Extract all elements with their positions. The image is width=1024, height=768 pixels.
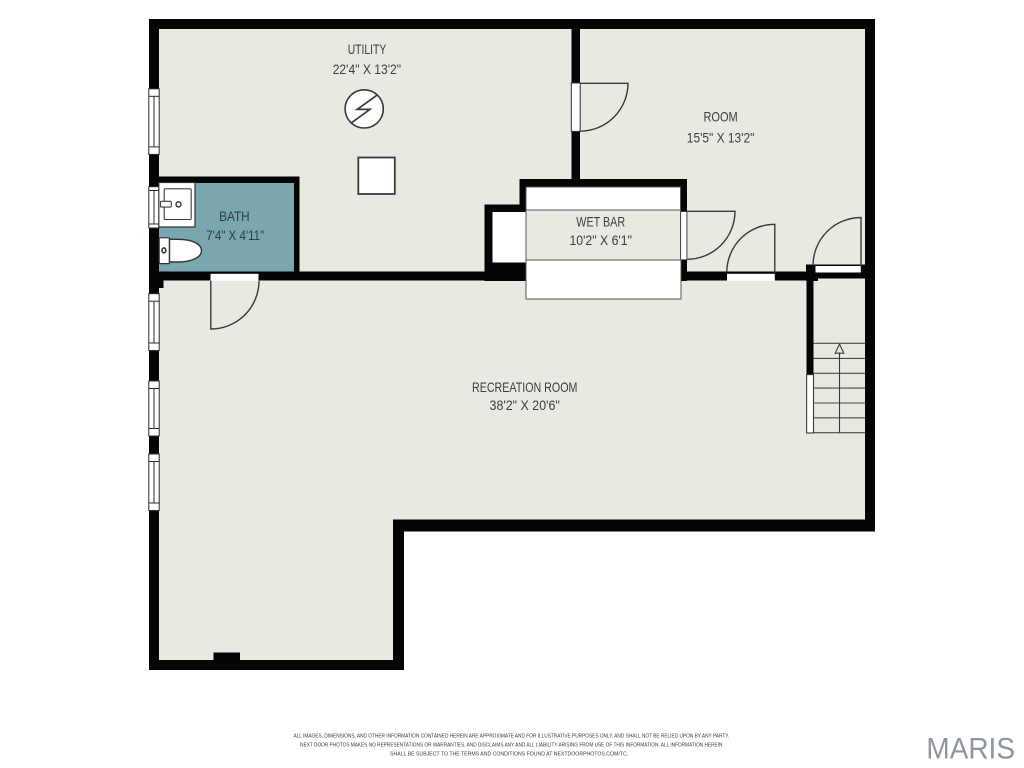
svg-text:BATH: BATH xyxy=(219,209,250,224)
svg-text:10'2" X 6'1": 10'2" X 6'1" xyxy=(569,233,632,248)
svg-text:38'2" X 20'6": 38'2" X 20'6" xyxy=(490,398,560,413)
svg-text:7'4" X 4'11": 7'4" X 4'11" xyxy=(206,228,264,243)
svg-text:ALL IMAGES, DIMENSIONS, AND OT: ALL IMAGES, DIMENSIONS, AND OTHER INFORM… xyxy=(293,734,729,740)
svg-text:NEXT DOOR PHOTOS MAKES NO REPR: NEXT DOOR PHOTOS MAKES NO REPRESENTATION… xyxy=(300,743,722,749)
svg-text:RECREATION ROOM: RECREATION ROOM xyxy=(472,380,577,395)
svg-text:SHALL BE SUBJECT TO THE TERMS: SHALL BE SUBJECT TO THE TERMS AND CONDIT… xyxy=(390,752,629,758)
svg-text:UTILITY: UTILITY xyxy=(348,42,387,57)
svg-text:ROOM: ROOM xyxy=(703,110,737,125)
svg-text:22'4" X 13'2": 22'4" X 13'2" xyxy=(333,62,401,77)
svg-text:WET BAR: WET BAR xyxy=(576,215,625,230)
svg-text:MARIS: MARIS xyxy=(926,733,1015,766)
svg-text:15'5" X 13'2": 15'5" X 13'2" xyxy=(687,130,755,145)
